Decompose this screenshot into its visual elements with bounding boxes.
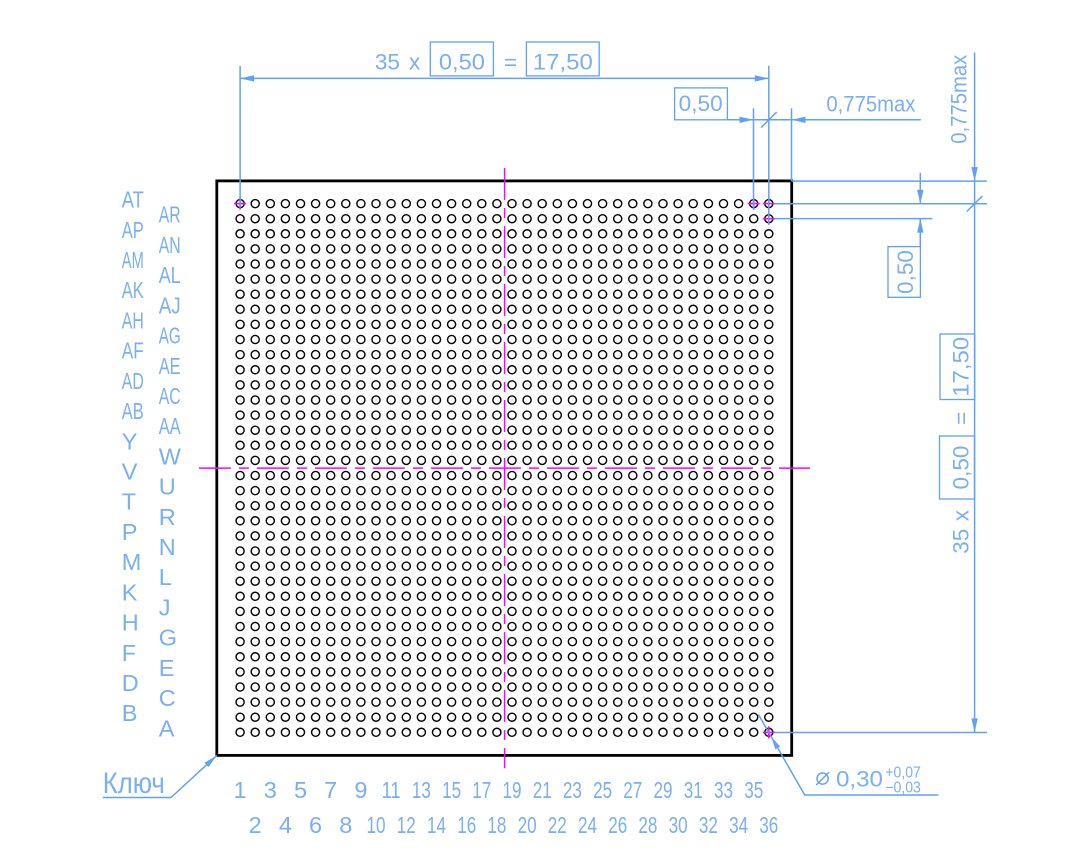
svg-text:AA: AA [159,413,181,439]
svg-text:0,50: 0,50 [679,91,723,116]
svg-text:10: 10 [367,812,386,838]
svg-text:17: 17 [472,777,491,803]
svg-text:27: 27 [623,777,642,803]
svg-text:35: 35 [949,529,974,554]
svg-text:2: 2 [249,812,262,838]
svg-text:14: 14 [427,812,446,838]
svg-text:Y: Y [122,428,138,454]
svg-text:AK: AK [122,277,144,303]
svg-text:0,50: 0,50 [439,49,485,74]
svg-text:A: A [159,715,175,741]
svg-text:12: 12 [397,812,416,838]
svg-text:13: 13 [412,777,431,803]
svg-text:0,50: 0,50 [949,446,974,490]
svg-text:=: = [949,412,974,425]
svg-text:AG: AG [159,323,181,349]
svg-text:AF: AF [122,338,144,364]
svg-text:AH: AH [122,307,144,333]
svg-text:H: H [122,610,139,636]
svg-text:15: 15 [442,777,461,803]
svg-text:16: 16 [457,812,476,838]
svg-text:30: 30 [669,812,688,838]
svg-text:F: F [122,640,136,666]
svg-text:36: 36 [759,812,778,838]
svg-text:AB: AB [122,398,144,424]
svg-text:20: 20 [518,812,537,838]
svg-text:4: 4 [279,812,292,838]
svg-text:AC: AC [159,383,181,409]
svg-text:U: U [159,474,176,500]
svg-text:x: x [949,509,974,521]
svg-text:0,775max: 0,775max [826,92,916,117]
svg-text:8: 8 [339,812,352,838]
svg-text:33: 33 [714,777,733,803]
svg-text:5: 5 [294,777,307,803]
svg-text:26: 26 [608,812,627,838]
svg-text:−0,03: −0,03 [885,780,921,797]
svg-text:C: C [159,685,176,711]
svg-text:25: 25 [593,777,612,803]
svg-text:34: 34 [729,812,748,838]
svg-text:28: 28 [638,812,657,838]
svg-text:AN: AN [159,232,181,258]
svg-text:23: 23 [563,777,582,803]
svg-text:P: P [122,519,138,545]
svg-text:0,30: 0,30 [836,767,883,792]
svg-text:35: 35 [375,49,400,74]
svg-text:V: V [122,459,138,485]
svg-text:AD: AD [122,368,144,394]
svg-text:AM: AM [122,247,144,273]
svg-text:3: 3 [264,777,277,803]
svg-text:6: 6 [309,812,322,838]
svg-text:29: 29 [654,777,673,803]
svg-text:0,50: 0,50 [893,250,918,294]
svg-text:M: M [122,549,142,575]
svg-text:AP: AP [122,217,144,243]
svg-text:AR: AR [159,202,181,228]
svg-text:22: 22 [548,812,567,838]
svg-text:J: J [159,594,171,620]
svg-text:D: D [122,670,139,696]
svg-text:AT: AT [122,187,144,213]
svg-text:11: 11 [382,777,401,803]
svg-text:24: 24 [578,812,597,838]
svg-text:17,50: 17,50 [949,337,974,397]
svg-text:R: R [159,504,176,530]
svg-text:Ключ: Ключ [103,767,165,800]
svg-text:N: N [159,534,176,560]
svg-text:AJ: AJ [159,292,181,318]
svg-text:0,775max: 0,775max [947,54,972,144]
svg-text:21: 21 [533,777,552,803]
svg-text:W: W [159,443,182,469]
svg-text:9: 9 [354,777,367,803]
svg-text:=: = [504,49,517,74]
svg-text:B: B [122,700,138,726]
svg-text:17,50: 17,50 [533,49,593,74]
svg-text:T: T [122,489,136,515]
svg-text:E: E [159,655,175,681]
svg-text:7: 7 [324,777,337,803]
svg-text:K: K [122,579,138,605]
svg-text:x: x [409,49,421,74]
svg-text:AE: AE [159,353,181,379]
svg-text:18: 18 [487,812,506,838]
svg-text:32: 32 [699,812,718,838]
svg-text:31: 31 [684,777,703,803]
svg-text:G: G [159,625,177,651]
svg-text:AL: AL [159,262,181,288]
svg-text:35: 35 [744,777,763,803]
svg-text:19: 19 [503,777,522,803]
svg-text:1: 1 [234,777,247,803]
svg-text:L: L [159,564,172,590]
